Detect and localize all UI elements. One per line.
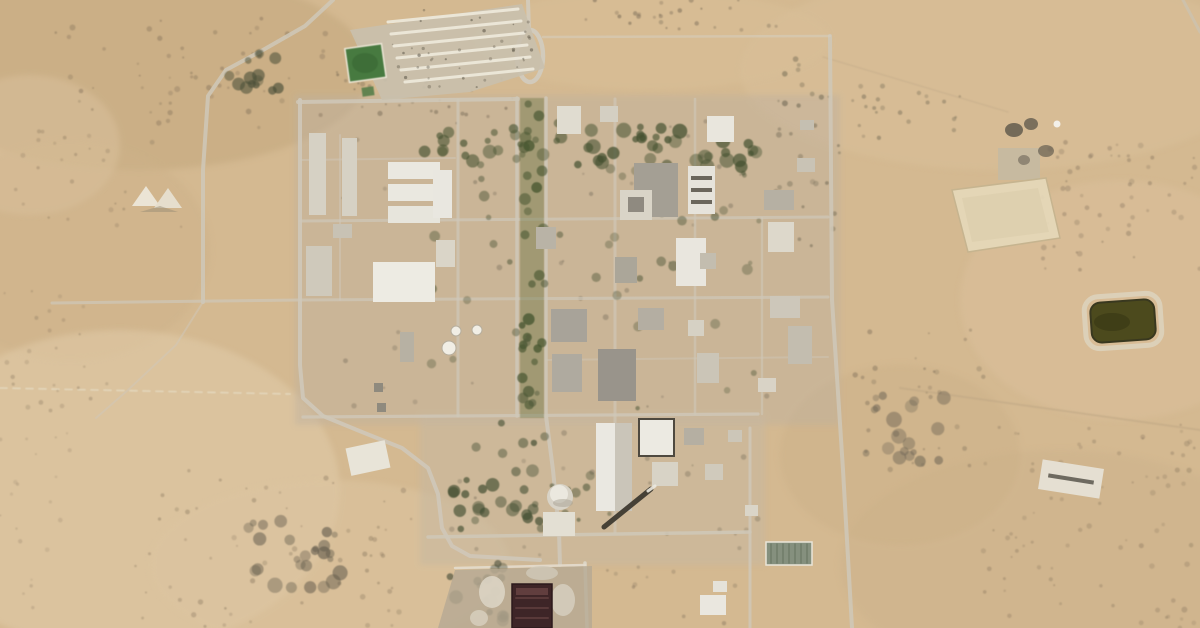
- shrubs: [633, 11, 637, 15]
- shrubs: [385, 103, 387, 105]
- rocks: [1063, 140, 1068, 145]
- building: [745, 505, 758, 516]
- field-worn-patch: [352, 53, 378, 73]
- parked-cars: [476, 86, 478, 88]
- rocks: [1139, 543, 1144, 548]
- debris: [741, 454, 747, 460]
- rocks: [915, 357, 917, 359]
- rocks: [362, 552, 367, 557]
- rocky-shadow: [893, 451, 907, 465]
- scrub-shadow: [286, 582, 297, 593]
- rocks: [964, 338, 967, 341]
- parked-cars: [423, 9, 426, 12]
- scrub-shadow: [253, 532, 266, 545]
- rocks: [18, 539, 22, 543]
- rocks: [372, 537, 377, 542]
- building: [713, 581, 727, 592]
- parked-cars: [530, 48, 533, 51]
- shrubs: [959, 95, 962, 98]
- rocks: [962, 446, 967, 451]
- rocks: [1015, 536, 1017, 538]
- rocky-shadow: [934, 456, 943, 465]
- rocks: [1017, 433, 1019, 435]
- rocks: [53, 384, 56, 387]
- rocks: [184, 538, 187, 541]
- median-trees: [531, 359, 538, 366]
- rocks: [36, 138, 40, 142]
- parked-cars: [516, 66, 518, 68]
- rocks: [167, 110, 172, 115]
- rocks: [387, 589, 392, 594]
- rocks: [31, 606, 34, 609]
- rocks: [220, 66, 224, 70]
- building: [552, 354, 582, 392]
- median-trees: [523, 140, 534, 151]
- parked-cars: [397, 65, 400, 68]
- trees: [637, 124, 644, 131]
- rocks: [1184, 561, 1190, 567]
- rocks: [169, 77, 171, 79]
- rocky-shadow: [937, 391, 951, 405]
- rocks: [22, 203, 25, 206]
- rocks: [1041, 245, 1047, 251]
- trees: [479, 191, 490, 202]
- shrubs: [464, 113, 468, 117]
- rocks: [193, 75, 197, 79]
- shrubs: [862, 94, 867, 99]
- shrubs: [917, 91, 921, 95]
- rocks: [45, 547, 50, 552]
- shrubs: [782, 71, 788, 77]
- trees: [607, 147, 620, 160]
- rocks: [998, 426, 1001, 429]
- rocks: [1030, 468, 1035, 473]
- debris: [682, 615, 686, 619]
- median-trees: [520, 230, 529, 239]
- debris: [474, 547, 478, 551]
- trees: [619, 173, 627, 181]
- debris: [722, 621, 726, 625]
- rocks: [36, 166, 39, 169]
- trees: [719, 153, 734, 168]
- rocks: [1014, 432, 1017, 435]
- rocks: [264, 485, 268, 489]
- rocks: [866, 428, 870, 432]
- trees: [677, 216, 687, 226]
- rocks: [252, 498, 257, 503]
- trees: [483, 145, 497, 159]
- rocks: [370, 554, 373, 557]
- rocks: [231, 535, 236, 540]
- rocks: [1044, 267, 1046, 269]
- rocks: [22, 592, 25, 595]
- median-trees: [534, 270, 545, 281]
- rocks: [25, 360, 29, 364]
- shrubs: [798, 237, 802, 241]
- rocks: [158, 517, 161, 520]
- rubble: [551, 584, 575, 616]
- rocks: [1037, 565, 1041, 569]
- rocks: [1181, 453, 1185, 457]
- rocks: [912, 462, 915, 465]
- rocks: [1130, 215, 1135, 220]
- trees: [610, 232, 619, 241]
- parked-cars: [512, 48, 515, 51]
- rocks: [955, 424, 960, 429]
- scrub-shadow: [258, 520, 268, 530]
- trees: [507, 259, 513, 265]
- debris: [493, 192, 497, 196]
- rocks: [62, 318, 66, 322]
- trees: [592, 273, 601, 282]
- rocks: [25, 405, 30, 410]
- trees: [557, 231, 564, 238]
- scrub-shadow: [301, 560, 312, 571]
- shrubs: [819, 95, 824, 100]
- trees: [748, 261, 752, 265]
- shrubs: [398, 104, 401, 107]
- rocks: [288, 77, 290, 79]
- trees: [463, 477, 469, 483]
- rocks: [321, 49, 325, 53]
- warehouse: [388, 184, 440, 201]
- rocks: [871, 379, 876, 384]
- rocks: [148, 552, 151, 555]
- debris: [686, 134, 690, 138]
- rocks: [346, 529, 350, 533]
- building: [400, 332, 414, 362]
- rocks: [1142, 437, 1144, 439]
- trees: [512, 328, 520, 336]
- shrubs: [810, 92, 815, 97]
- debris: [691, 464, 693, 466]
- rocks: [1098, 502, 1101, 505]
- rocks: [1150, 490, 1156, 496]
- trees: [636, 132, 647, 143]
- rocks: [168, 91, 173, 96]
- shrubs: [796, 67, 801, 72]
- rocks: [1033, 512, 1035, 514]
- rocks: [1118, 545, 1123, 550]
- rocks: [29, 584, 32, 587]
- rocks: [109, 207, 114, 212]
- trees: [710, 319, 720, 329]
- shrubs: [925, 94, 929, 98]
- trees: [748, 150, 754, 156]
- rocks: [260, 17, 264, 21]
- shrubs: [952, 128, 956, 132]
- storage-tank: [442, 341, 456, 355]
- rocks: [89, 148, 91, 150]
- rocks: [888, 467, 893, 472]
- shrubs: [880, 84, 885, 89]
- rocks: [385, 529, 387, 531]
- trees: [616, 123, 631, 138]
- trees: [586, 471, 595, 480]
- rocks: [1150, 156, 1154, 160]
- building: [700, 595, 726, 615]
- rocks: [981, 375, 985, 379]
- debris: [473, 180, 477, 184]
- rocks: [1139, 620, 1144, 625]
- rocky-shadow: [886, 412, 902, 428]
- trees: [486, 215, 491, 220]
- rocks: [984, 462, 988, 466]
- rocks: [255, 26, 260, 31]
- shrubs: [336, 73, 339, 76]
- rocks: [147, 26, 153, 32]
- rocks: [149, 111, 152, 114]
- dome-annex: [543, 512, 575, 536]
- rocks: [377, 582, 380, 585]
- rocks: [16, 483, 19, 486]
- rocks: [39, 400, 44, 405]
- rocks: [1051, 567, 1054, 570]
- trees: [719, 206, 728, 215]
- rocks: [1111, 604, 1114, 607]
- trees: [636, 275, 643, 282]
- rocks: [92, 87, 94, 89]
- shrubs: [864, 105, 867, 108]
- trees: [541, 280, 549, 288]
- rocks: [63, 136, 67, 140]
- debris: [561, 430, 567, 436]
- road-top-right: [543, 36, 830, 37]
- median-trees: [517, 373, 527, 383]
- trees: [449, 356, 456, 363]
- rocks: [279, 491, 282, 494]
- rocks: [1088, 154, 1092, 158]
- trees: [612, 291, 621, 300]
- debris: [733, 583, 738, 588]
- rocks: [56, 390, 59, 393]
- rocks: [14, 188, 18, 192]
- rocks: [157, 36, 162, 41]
- rocks: [1053, 584, 1055, 586]
- rocks: [1056, 156, 1059, 159]
- rocky-shadow: [931, 422, 944, 435]
- shrubs: [357, 82, 359, 84]
- shrubs: [669, 11, 673, 15]
- debris: [717, 164, 722, 169]
- building: [800, 120, 814, 130]
- rocks: [49, 500, 52, 503]
- rocks: [1127, 154, 1130, 157]
- rocks: [257, 126, 260, 129]
- trees: [532, 501, 538, 507]
- rocks: [365, 623, 370, 628]
- rocks: [89, 397, 93, 401]
- shrubs: [796, 103, 800, 107]
- shrubs: [872, 106, 876, 110]
- rocks: [91, 108, 94, 111]
- trees: [419, 146, 431, 158]
- debris: [457, 479, 462, 484]
- rocks: [20, 153, 25, 158]
- debris: [685, 471, 691, 477]
- parked-cars: [493, 45, 496, 48]
- rocks: [1161, 523, 1165, 527]
- rocks: [938, 447, 940, 449]
- shrubs: [628, 22, 631, 25]
- debris: [737, 546, 741, 550]
- shrubs: [793, 56, 799, 62]
- rocks: [182, 56, 184, 58]
- parked-cars: [527, 35, 530, 38]
- median-trees: [534, 110, 545, 121]
- debris: [646, 576, 649, 579]
- rocks: [918, 385, 921, 388]
- rocks: [383, 500, 385, 502]
- rocks: [1193, 157, 1195, 159]
- rocks: [1129, 179, 1135, 185]
- rocks: [1187, 439, 1192, 444]
- debris: [582, 173, 584, 175]
- rocks: [10, 375, 14, 379]
- dark-blob: [1038, 145, 1054, 157]
- debris: [343, 358, 348, 363]
- rubble: [479, 576, 505, 608]
- rubble: [470, 610, 488, 626]
- median-trees: [537, 166, 548, 177]
- rocks: [74, 153, 77, 156]
- rocks: [1180, 430, 1183, 433]
- shrubs: [782, 100, 788, 106]
- debris: [755, 516, 761, 522]
- parked-cars: [513, 24, 515, 26]
- debris: [383, 187, 387, 191]
- rocks: [1098, 213, 1102, 217]
- rocks: [332, 482, 334, 484]
- rocks: [1120, 203, 1125, 208]
- rocks: [1127, 158, 1131, 162]
- rocks: [263, 90, 265, 92]
- parked-cars: [482, 29, 485, 32]
- debris: [606, 569, 609, 572]
- rocks: [1138, 143, 1144, 149]
- rocks: [928, 332, 930, 334]
- rocks: [145, 591, 147, 593]
- rocks: [3, 292, 5, 294]
- building: [306, 246, 332, 296]
- rocks: [1011, 556, 1013, 558]
- rocks: [67, 35, 71, 39]
- rocks: [161, 493, 165, 497]
- rocks: [180, 46, 184, 50]
- trees: [269, 52, 281, 64]
- trees: [742, 264, 753, 275]
- rocks: [1052, 245, 1055, 248]
- rocks: [1129, 195, 1133, 199]
- trees: [495, 496, 506, 507]
- rocks: [66, 432, 68, 434]
- shrubs: [336, 71, 338, 73]
- parked-cars: [428, 85, 432, 89]
- shrubs: [876, 97, 880, 101]
- rocks: [1079, 233, 1084, 238]
- rocks: [35, 453, 37, 455]
- building: [638, 308, 664, 330]
- shrubs: [740, 28, 744, 32]
- shrubs: [776, 132, 782, 138]
- trees: [535, 391, 540, 396]
- trees: [491, 129, 498, 136]
- rocks: [1116, 143, 1119, 146]
- debris: [351, 403, 356, 408]
- trees: [607, 512, 611, 516]
- rocks: [25, 437, 28, 440]
- building: [691, 188, 712, 192]
- trees: [454, 504, 467, 517]
- rocks: [48, 329, 52, 333]
- rocks: [190, 75, 193, 78]
- rocks: [187, 469, 190, 472]
- rocks: [224, 607, 227, 610]
- parked-cars: [422, 47, 425, 50]
- trees: [518, 393, 529, 404]
- trees: [429, 231, 440, 242]
- median-trees: [525, 100, 532, 107]
- shrubs: [767, 24, 771, 28]
- trees: [540, 432, 549, 441]
- scrub-shadow: [318, 581, 330, 593]
- rocky-shadow: [909, 396, 919, 406]
- rocks: [1076, 166, 1081, 171]
- scrub-shadow: [322, 527, 332, 537]
- shrubs: [659, 20, 664, 25]
- rocks: [1078, 268, 1082, 272]
- trees: [478, 484, 487, 493]
- shrubs: [777, 100, 779, 102]
- trees: [240, 81, 253, 94]
- debris: [637, 566, 640, 569]
- building: [684, 428, 704, 445]
- building: [342, 138, 357, 216]
- shrubs: [665, 27, 667, 29]
- rocks: [83, 365, 86, 368]
- rocks: [1166, 483, 1171, 488]
- parked-cars: [479, 16, 481, 18]
- rocks: [250, 578, 255, 583]
- dark-blob: [1018, 155, 1030, 165]
- rocks: [1031, 541, 1034, 544]
- building: [551, 309, 587, 342]
- shrubs: [694, 21, 698, 25]
- shrubs: [797, 63, 801, 67]
- rocks: [1155, 608, 1160, 613]
- trees: [583, 143, 593, 153]
- median-trees: [524, 207, 532, 215]
- rocks: [245, 487, 247, 489]
- rocks: [1191, 621, 1196, 626]
- building: [697, 353, 719, 383]
- pond-dark-water: [1094, 313, 1130, 331]
- debris: [633, 582, 638, 587]
- rocks: [1087, 523, 1092, 528]
- shrubs: [858, 124, 861, 127]
- median-trees: [531, 182, 542, 193]
- median-trees: [537, 338, 546, 347]
- rocks: [983, 590, 987, 594]
- trees: [605, 240, 613, 248]
- building: [768, 222, 794, 252]
- shrubs: [906, 119, 911, 124]
- rocks: [1099, 584, 1102, 587]
- rocks: [365, 569, 369, 573]
- parked-cars: [427, 77, 429, 79]
- building: [615, 257, 637, 283]
- trees: [652, 143, 663, 154]
